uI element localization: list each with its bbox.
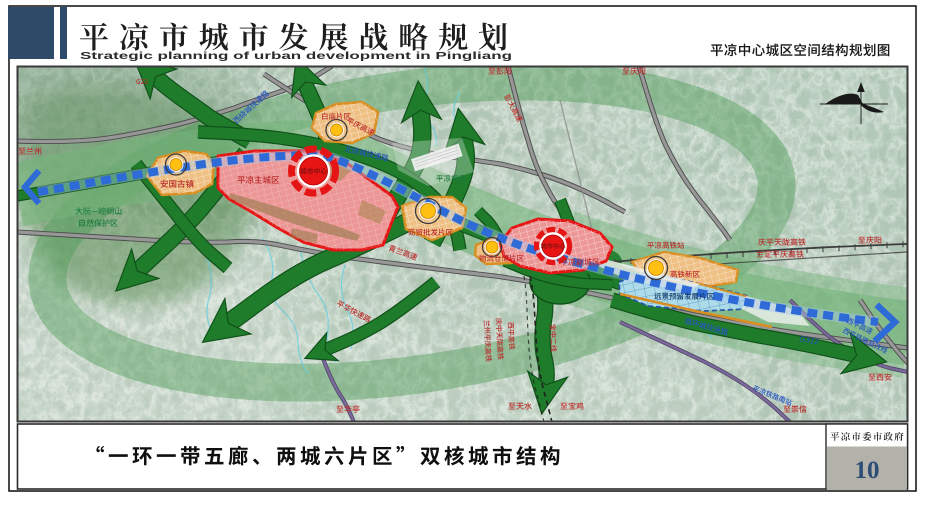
svg-text:10: 10 [855,457,880,484]
svg-text:Strategic planning of urban de: Strategic planning of urban development … [80,50,512,62]
